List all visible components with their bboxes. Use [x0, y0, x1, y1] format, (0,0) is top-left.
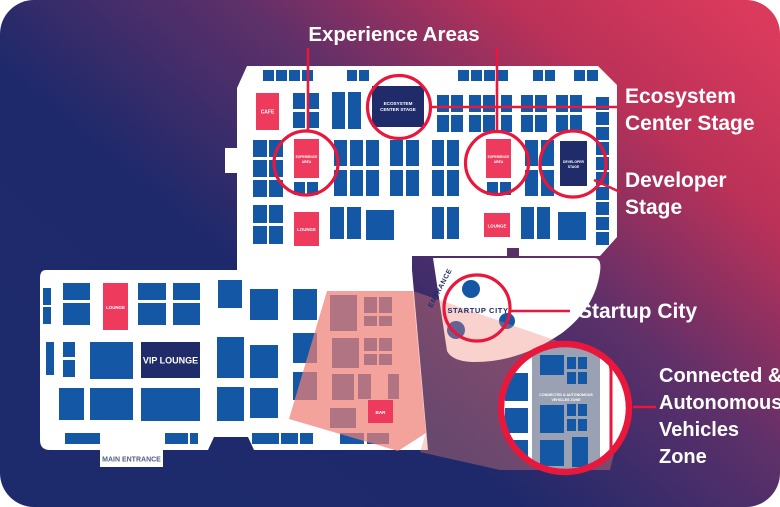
booth — [451, 115, 463, 132]
booth — [574, 70, 585, 81]
booth — [447, 140, 459, 166]
booth — [497, 70, 508, 81]
booth — [596, 217, 609, 230]
cafe-label: CAFE — [261, 110, 275, 116]
booth — [390, 170, 403, 196]
booth — [300, 433, 313, 444]
booth — [138, 283, 166, 300]
bar-label: BAR — [376, 410, 387, 415]
booth — [253, 180, 267, 197]
booth — [269, 205, 283, 223]
booth — [545, 70, 555, 81]
experience-area-1: EXPERIENCE AREA — [294, 139, 319, 178]
booth — [43, 307, 51, 324]
booth — [451, 95, 463, 112]
cav-zone-label-1: CONNECTED & AUTONOMOUS — [539, 393, 593, 397]
developer-stage-label-2: STAGE — [568, 165, 580, 169]
booth — [63, 360, 75, 377]
booth — [347, 207, 361, 239]
booth — [253, 160, 267, 177]
booth — [190, 433, 198, 444]
main-entrance-label: MAIN ENTRANCE — [102, 457, 161, 464]
ecosystem-label-2: Center Stage — [625, 112, 755, 135]
booth — [90, 342, 133, 379]
booth — [281, 433, 298, 444]
booth — [533, 70, 543, 81]
cav-label-4: Zone — [659, 446, 707, 468]
booth — [59, 388, 84, 420]
booth — [535, 115, 547, 132]
ecosystem-label-1: Ecosystem — [625, 85, 736, 108]
booth — [173, 303, 200, 325]
booth — [505, 408, 528, 433]
booth — [587, 70, 598, 81]
booth — [348, 92, 361, 129]
booth — [138, 303, 166, 325]
booth — [483, 115, 495, 132]
ecosystem-stage-label-1: ECOSYSTEM — [384, 101, 413, 106]
booth — [253, 205, 267, 223]
developer-stage-label-1: DEVELOPER — [563, 160, 584, 164]
developer-stage-area: DEVELOPER STAGE — [560, 141, 587, 186]
booth — [437, 115, 449, 132]
page-title: Experience Areas — [308, 23, 479, 46]
lounge-label: LOUNGE — [106, 305, 125, 310]
vip-lounge-area: VIP LOUNGE — [141, 342, 200, 378]
booth — [141, 388, 200, 421]
ecosystem-stage-label-2: CENTER STAGE — [380, 107, 416, 112]
booth — [432, 207, 444, 239]
booth — [596, 202, 609, 215]
developer-label-2: Stage — [625, 196, 682, 219]
booth — [263, 70, 274, 81]
booth — [366, 210, 394, 240]
booth — [578, 372, 587, 384]
booth — [46, 342, 54, 375]
booth — [578, 357, 587, 369]
booth — [570, 95, 582, 112]
experience-area-2-label-2: AREA — [494, 160, 504, 164]
booth — [332, 92, 345, 129]
venue-map-svg: CAFE ECOSYSTEM CENTER STAGE EXPERIENCE A… — [0, 0, 780, 507]
startup-city-map-label: STARTUP CITY — [447, 306, 508, 315]
booth — [469, 95, 481, 112]
booth — [558, 212, 586, 240]
lounge-label: LOUNGE — [297, 227, 316, 232]
cav-label-2: Autonomous — [659, 392, 780, 414]
booth — [217, 387, 244, 421]
vip-lounge-label: VIP LOUNGE — [143, 356, 198, 366]
booth — [165, 433, 188, 444]
booth — [556, 115, 568, 132]
booth — [350, 170, 363, 196]
cafe-area: CAFE — [256, 93, 279, 130]
booth — [350, 140, 363, 166]
booth — [253, 140, 267, 157]
booth — [173, 283, 200, 300]
booth — [556, 95, 568, 112]
experience-area-1-label-2: AREA — [302, 160, 312, 164]
booth — [269, 226, 283, 244]
cav-zone-label-2: VEHICLES ZONE — [552, 398, 582, 402]
lounge-lower: LOUNGE — [103, 283, 128, 330]
cav-label-3: Vehicles — [659, 419, 739, 441]
booth — [578, 419, 587, 431]
booth — [540, 405, 564, 433]
booth — [540, 355, 564, 375]
booth — [437, 95, 449, 112]
bar-area: BAR — [368, 400, 393, 423]
booth — [63, 303, 90, 325]
booth — [366, 140, 379, 166]
booth — [63, 283, 90, 300]
startup-city-dot — [462, 280, 480, 298]
booth — [447, 207, 459, 239]
event-floor-map: CAFE ECOSYSTEM CENTER STAGE EXPERIENCE A… — [0, 0, 780, 507]
booth — [484, 70, 495, 81]
booth — [471, 70, 482, 81]
booth — [596, 187, 609, 200]
booth — [572, 437, 588, 467]
experience-area-2-label-1: EXPERIENCE — [488, 155, 511, 159]
booth — [483, 95, 495, 112]
booth — [217, 337, 244, 378]
booth — [330, 207, 344, 239]
booth — [501, 115, 512, 132]
booth — [63, 342, 75, 357]
booth — [537, 207, 550, 239]
booth — [567, 404, 576, 416]
startup-label: Startup City — [578, 300, 697, 323]
booth — [293, 93, 305, 109]
booth — [567, 419, 576, 431]
booth — [596, 232, 609, 245]
booth — [406, 170, 419, 196]
booth — [253, 226, 267, 244]
booth — [65, 433, 100, 444]
experience-area-2: EXPERIENCE AREA — [486, 139, 511, 178]
booth — [469, 115, 481, 132]
booth — [250, 388, 278, 418]
booth — [567, 357, 576, 369]
booth — [43, 288, 51, 305]
booth — [250, 289, 278, 320]
lounge-upper-right: LOUNGE — [484, 213, 510, 237]
booth — [501, 95, 512, 112]
cav-label-1: Connected & — [659, 365, 780, 387]
lounge-label: LOUNGE — [488, 224, 507, 229]
ecosystem-center-stage-area: ECOSYSTEM CENTER STAGE — [372, 86, 424, 127]
booth — [432, 140, 444, 166]
booth — [521, 95, 533, 112]
booth — [432, 170, 444, 196]
booth — [596, 127, 609, 140]
booth — [293, 289, 317, 320]
booth — [567, 372, 576, 384]
booth — [596, 112, 609, 125]
lounge-upper-left: LOUNGE — [294, 212, 319, 246]
booth — [390, 140, 403, 166]
booth — [293, 112, 305, 128]
booth — [347, 70, 357, 81]
booth — [90, 388, 133, 420]
booth — [359, 70, 369, 81]
booth — [250, 345, 278, 378]
booth — [521, 207, 534, 239]
booth — [578, 404, 587, 416]
booth — [447, 170, 459, 196]
developer-label-1: Developer — [625, 169, 727, 192]
booth — [540, 440, 564, 466]
booth — [406, 140, 419, 166]
booth — [252, 433, 279, 444]
booth — [458, 70, 469, 81]
booth — [276, 70, 287, 81]
booth — [218, 280, 242, 308]
booth — [366, 170, 379, 196]
booth — [289, 70, 300, 81]
booth — [535, 95, 547, 112]
booth — [521, 115, 533, 132]
experience-area-1-label-1: EXPERIENCE — [296, 155, 319, 159]
